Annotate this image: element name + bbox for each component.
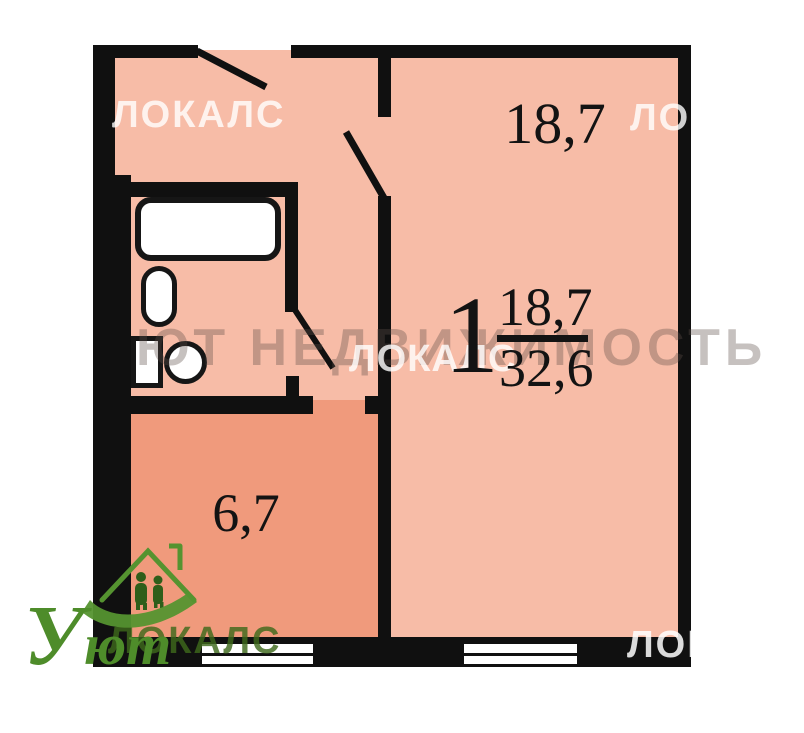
summary-total-area: 32,6 [499, 341, 591, 395]
floor-plan: ЛОКАЛС ЛОКАЛС ЮТ НЕДВИЖИМОСТЬ ЛОКАЛС ЛОК… [0, 0, 804, 733]
wall-top-right [291, 45, 691, 58]
watermark-locals-top-left: ЛОКАЛС [112, 96, 285, 134]
living-room-area-label: 18,7 [503, 95, 607, 153]
watermark-locals-top-right: ЛОКАЛС [630, 99, 803, 137]
summary-rooms-count: 1 [444, 280, 494, 390]
wall-bath-bottom [93, 396, 313, 414]
watermark-locals-bottom-left: ЛОКАЛС [108, 622, 281, 660]
bathtub [135, 197, 281, 261]
wall-left-lining [113, 175, 131, 667]
window-living [461, 641, 580, 667]
watermark-locals-bottom-right: ЛОКАЛС [627, 626, 800, 664]
window-living-divider [463, 653, 578, 656]
summary-living-area: 18,7 [498, 280, 590, 334]
wall-central-stub-top [378, 45, 391, 117]
wall-left [93, 45, 115, 667]
wall-central [378, 196, 391, 637]
wall-bath-right-upper [285, 182, 298, 312]
sink [141, 266, 177, 327]
wall-kitchen-door-stub [365, 396, 379, 414]
wall-hall-bottom [93, 182, 298, 197]
kitchen-area-label: 6,7 [200, 486, 292, 540]
